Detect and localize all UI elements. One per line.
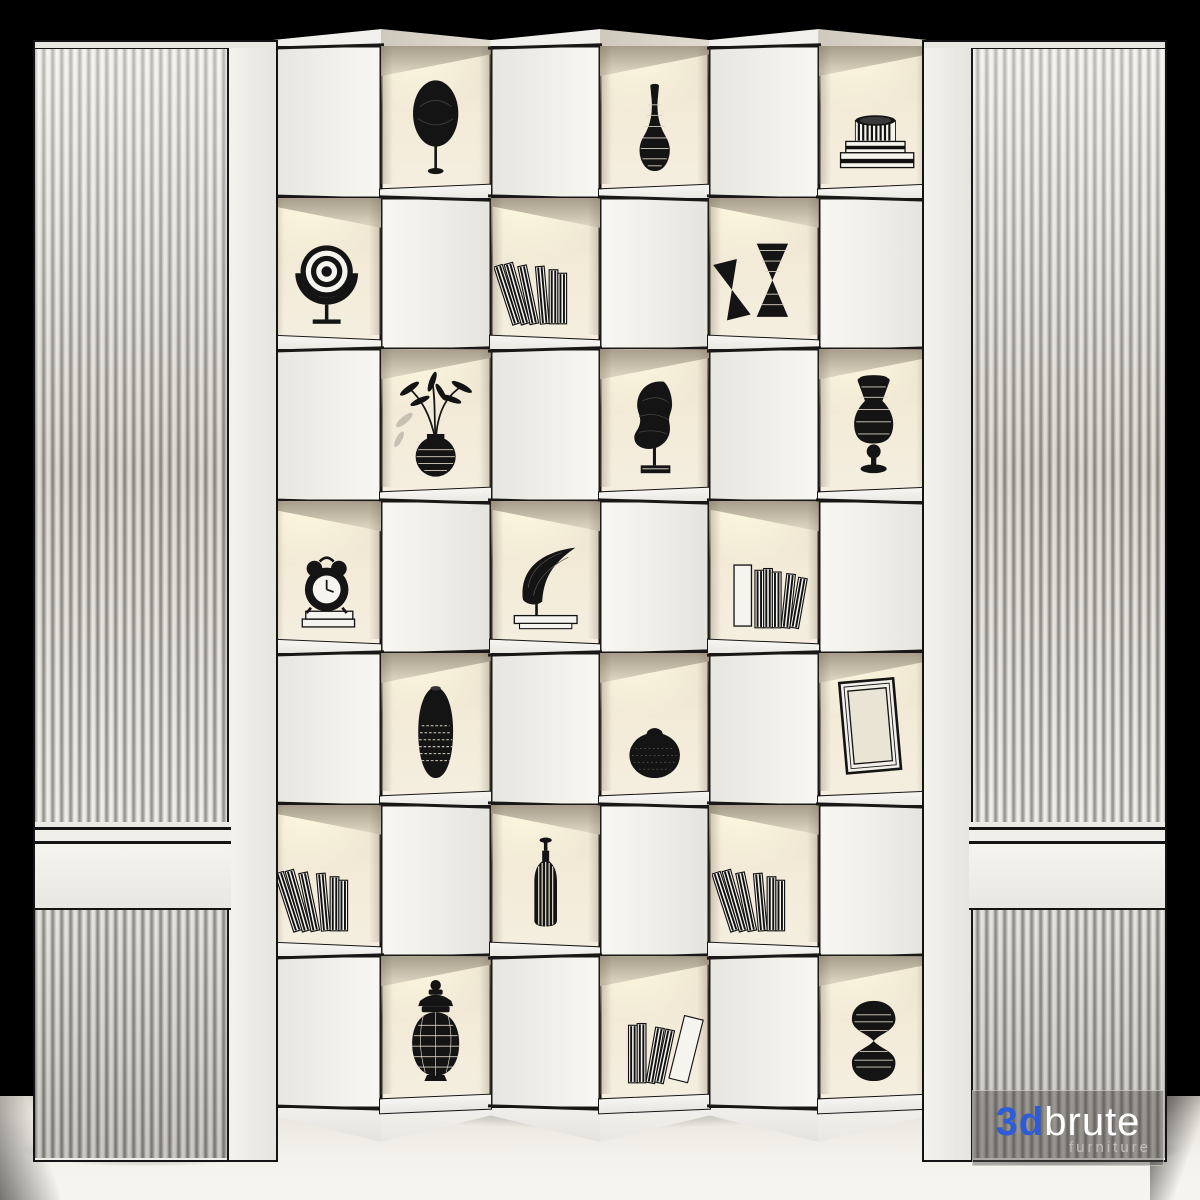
unit-top-cap (818, 29, 928, 47)
shelf-cell (819, 653, 928, 805)
watermark: 3d brute furniture (972, 1090, 1164, 1166)
unit-top-cap (381, 29, 491, 47)
shelf-cell (381, 349, 490, 501)
object-leaning-striped-books (275, 821, 378, 943)
shelf-cell (709, 198, 818, 350)
object-wicker-hourglass (822, 973, 925, 1095)
shelf-cell (709, 501, 818, 653)
object-alarm-clock-on-books (275, 518, 378, 640)
shelf-cell (491, 501, 600, 653)
shelf-panel-face (272, 46, 381, 198)
shelf-cell (381, 46, 490, 198)
left-panel-stile (227, 48, 276, 1160)
object-leaning-striped-books (494, 214, 597, 336)
shelf-unit (272, 46, 928, 1108)
object-hourglass-vases (712, 214, 815, 336)
shelf-panel-face (709, 349, 818, 501)
shelf-panel-face (819, 501, 928, 653)
object-round-black-pot (603, 670, 706, 792)
shelf-panel-face (709, 653, 818, 805)
shelf-cell (272, 501, 381, 653)
shelf-panel-face (709, 46, 818, 198)
right-panel-band (969, 822, 1165, 930)
shelf-cell (600, 653, 709, 805)
shelf-cell (819, 956, 928, 1108)
object-egg-sculpture (384, 63, 487, 185)
object-leaning-striped-books (712, 821, 815, 943)
left-fluted-panel (33, 40, 278, 1162)
shelf-panel-face (709, 956, 818, 1108)
object-plant-in-wicker-pot (384, 366, 487, 488)
object-wicker-table-lamp (822, 366, 925, 488)
shelf-cell (491, 198, 600, 350)
shelf-cell (272, 198, 381, 350)
unit-top-cap (600, 29, 710, 47)
left-panel-band (35, 822, 231, 930)
watermark-logo: 3d brute (983, 1101, 1153, 1143)
shelf-panel-face (272, 653, 381, 805)
object-striped-box-stack (822, 63, 925, 185)
watermark-subtitle: furniture (983, 1139, 1153, 1156)
right-panel-stile (924, 48, 973, 1160)
object-rings-sculpture (275, 214, 378, 336)
left-panel-slats (35, 48, 231, 1158)
right-fluted-panel (922, 40, 1167, 1162)
shelf-cell (381, 653, 490, 805)
shelf-panel-face (491, 956, 600, 1108)
object-leaning-white-books (603, 973, 706, 1095)
shelf-panel-face (272, 349, 381, 501)
shelf-cell (381, 956, 490, 1108)
object-striped-bottle (494, 821, 597, 943)
object-tall-patterned-vase (384, 670, 487, 792)
shelf-panel-face (491, 349, 600, 501)
right-panel-slats (969, 48, 1165, 1158)
shelf-cell (272, 805, 381, 957)
object-wicker-bottle-vase (603, 63, 706, 185)
shelf-panel-face (600, 198, 709, 350)
shelf-panel-face (600, 805, 709, 957)
shelf-cell (491, 805, 600, 957)
shelf-cell (819, 349, 928, 501)
shelf-cell (600, 46, 709, 198)
shelf-panel-face (819, 198, 928, 350)
shelf-panel-face (600, 501, 709, 653)
shelf-panel-face (272, 956, 381, 1108)
shelf-panel-face (819, 805, 928, 957)
shelf-panel-face (381, 805, 490, 957)
shelf-cell (600, 956, 709, 1108)
shelf-panel-face (381, 198, 490, 350)
shelf-cell (600, 349, 709, 501)
object-empty-picture-frame (822, 670, 925, 792)
object-wicker-ginger-jar (384, 973, 487, 1095)
object-horn-sculpture (494, 518, 597, 640)
shelf-cell (819, 46, 928, 198)
object-striped-books-row (712, 518, 815, 640)
watermark-prefix: 3d (996, 1101, 1045, 1143)
object-face-sculpture (603, 366, 706, 488)
shelf-panel-face (381, 501, 490, 653)
shelf-panel-face (491, 653, 600, 805)
watermark-name: brute (1044, 1101, 1140, 1143)
shelf-cell (709, 805, 818, 957)
shelf-panel-face (491, 46, 600, 198)
